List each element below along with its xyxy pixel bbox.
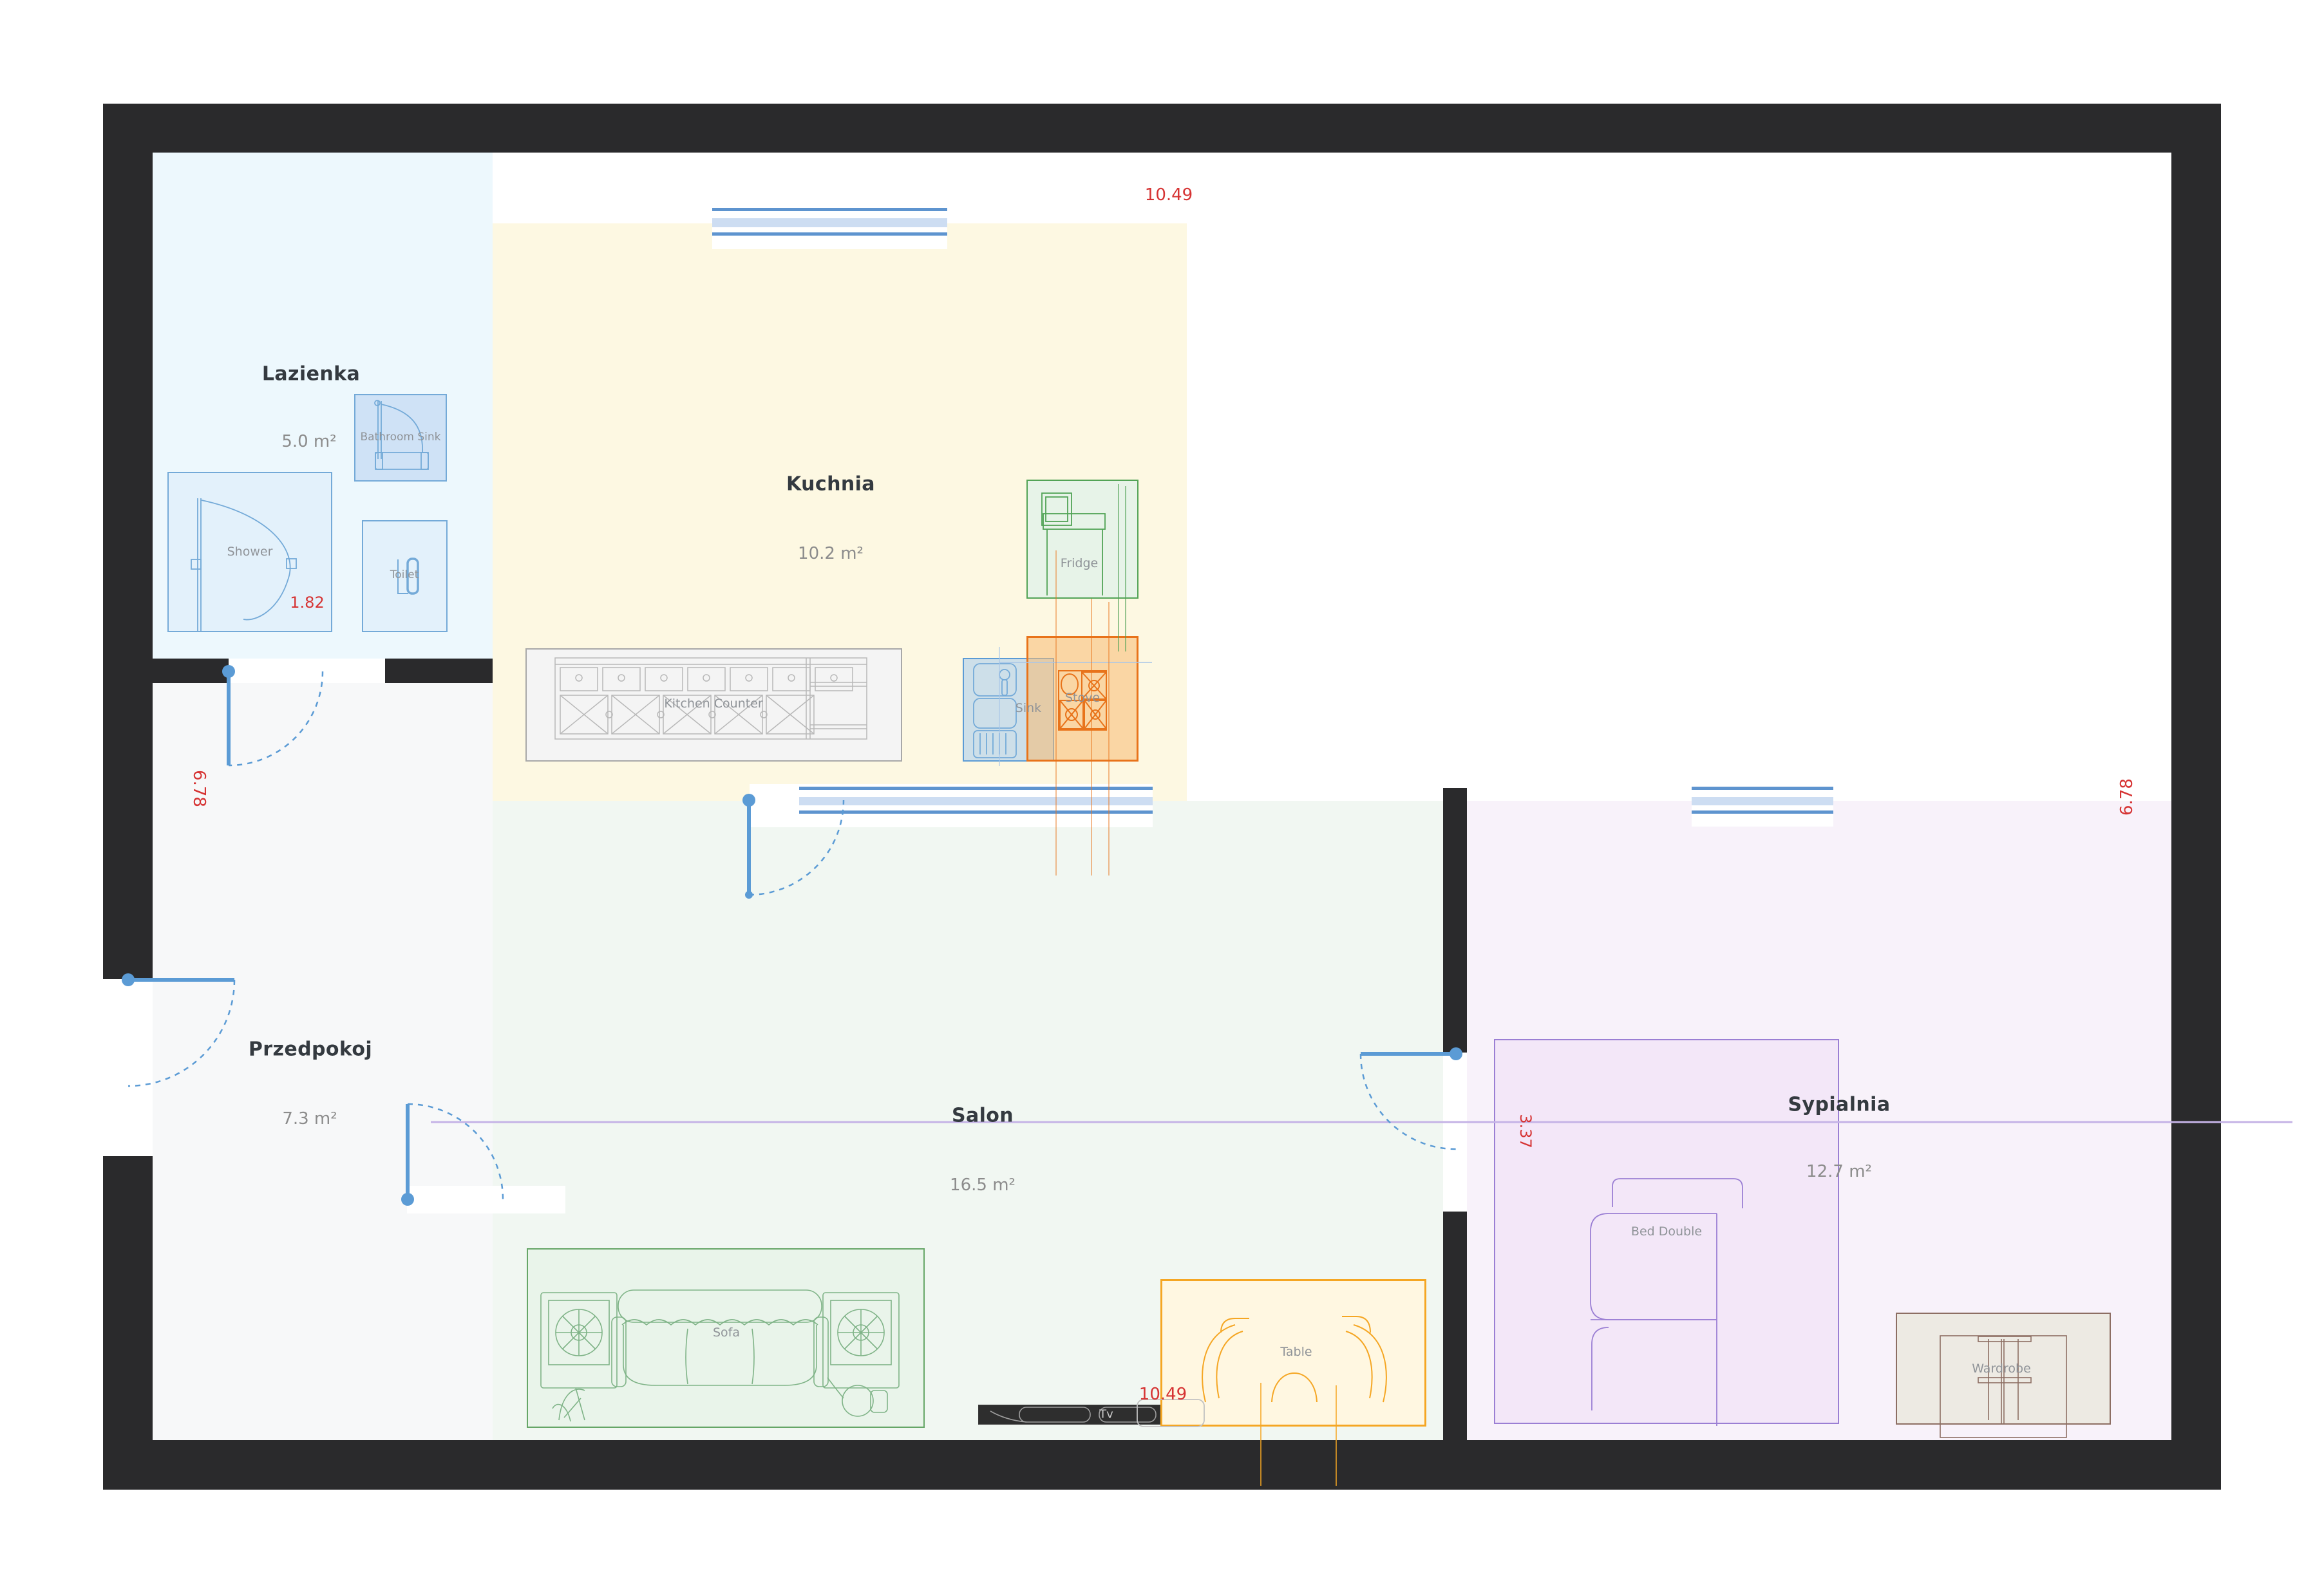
door-bathroom [222,665,323,765]
door-przedpokoj-salon [401,1104,503,1206]
label-table: Table [1280,1345,1312,1359]
label-kitchen-counter: Kitchen Counter [664,697,762,711]
room-area-kuchnia: 10.2 m² [798,544,864,563]
room-label-sypialnia: Sypialnia [1788,1094,1891,1116]
linework-overlay [0,0,2324,1592]
kitchen-sink-glyph [974,647,1152,766]
label-bed-double: Bed Double [1631,1224,1702,1239]
door-entrance [122,973,234,1086]
room-label-przedpokoj: Przedpokoj [249,1038,372,1061]
dim-label-bedroom: 3.37 [1516,1114,1535,1148]
room-area-przedpokoj: 7.3 m² [282,1109,337,1128]
label-sofa: Sofa [713,1325,740,1340]
door-bathroom-hinge [222,665,235,678]
label-stove: Stove [1065,691,1100,705]
label-fridge: Fridge [1061,556,1098,570]
wardrobe-glyph [1940,1336,2066,1437]
shower-glyph [191,498,296,631]
dim-label-top: 10.49 [1145,185,1193,205]
bed-glyph [1591,1179,1743,1426]
dim-label-bottom: 10.49 [1139,1385,1187,1404]
door-przedpokoj-salon-hinge [401,1193,414,1206]
room-area-sypialnia: 12.7 m² [1806,1162,1872,1181]
label-tv: Tv [1099,1408,1113,1421]
door-kitchen-salon [742,794,844,899]
dim-label-left: 6.78 [189,770,209,807]
door-kitchen-salon-hinge [742,794,755,807]
room-area-salon: 16.5 m² [950,1175,1016,1195]
label-wardrobe: Wardrobe [1972,1362,2031,1376]
label-shower: Shower [227,545,273,559]
label-sink: Sink [1016,701,1041,715]
room-label-lazienka: Lazienka [262,363,360,386]
floorplan-canvas: Lazienka 5.0 m² Kuchnia 10.2 m² Przedpok… [0,0,2324,1592]
label-bathroom-sink: Bathroom Sink [360,431,440,444]
table-glyph [1202,1316,1386,1486]
door-salon-sypialnia-hinge [1450,1047,1462,1060]
sofa-glyph [541,1290,899,1421]
label-toilet: Toilet [390,568,419,581]
dim-label-shower: 1.82 [290,594,324,612]
door-salon-sypialnia [1361,1047,1462,1149]
room-label-salon: Salon [952,1105,1014,1127]
room-area-lazienka: 5.0 m² [281,432,336,451]
dim-label-right: 6.78 [2117,778,2137,816]
room-label-kuchnia: Kuchnia [786,473,875,496]
door-entrance-hinge [122,973,135,986]
